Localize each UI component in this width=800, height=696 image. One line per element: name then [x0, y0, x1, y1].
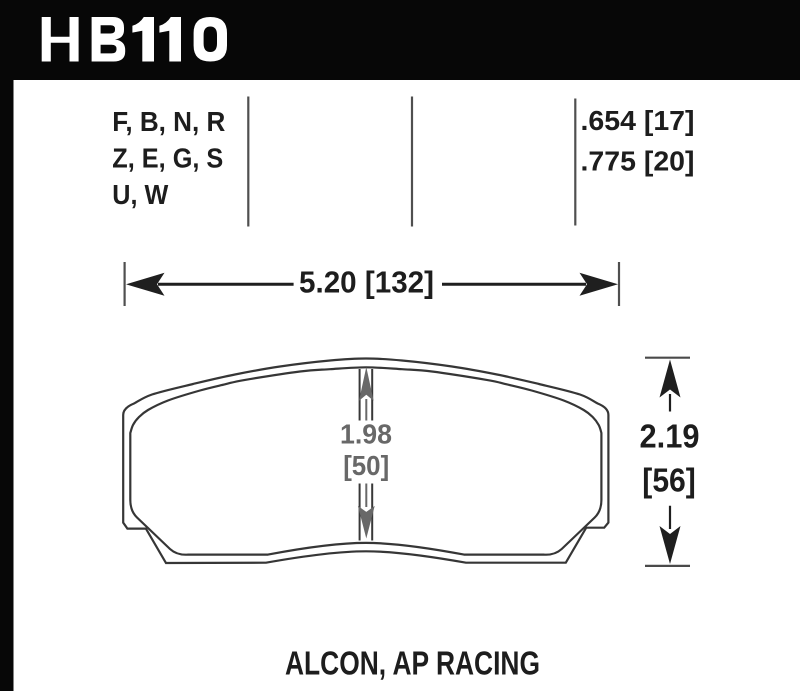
svg-text:U, W: U, W	[112, 179, 169, 210]
svg-text:.654 [17]: .654 [17]	[581, 105, 695, 136]
svg-text:1.98: 1.98	[340, 419, 392, 450]
svg-text:.775 [20]: .775 [20]	[581, 145, 695, 176]
svg-text:[50]: [50]	[343, 450, 389, 481]
svg-text:2.19: 2.19	[640, 418, 700, 455]
svg-text:5.20 [132]: 5.20 [132]	[299, 264, 434, 299]
svg-text:[56]: [56]	[642, 462, 696, 499]
svg-text:Z, E, G, S: Z, E, G, S	[112, 143, 223, 174]
svg-text:F, B, N, R: F, B, N, R	[112, 106, 225, 137]
svg-text:ALCON, AP RACING: ALCON, AP RACING	[285, 645, 540, 682]
